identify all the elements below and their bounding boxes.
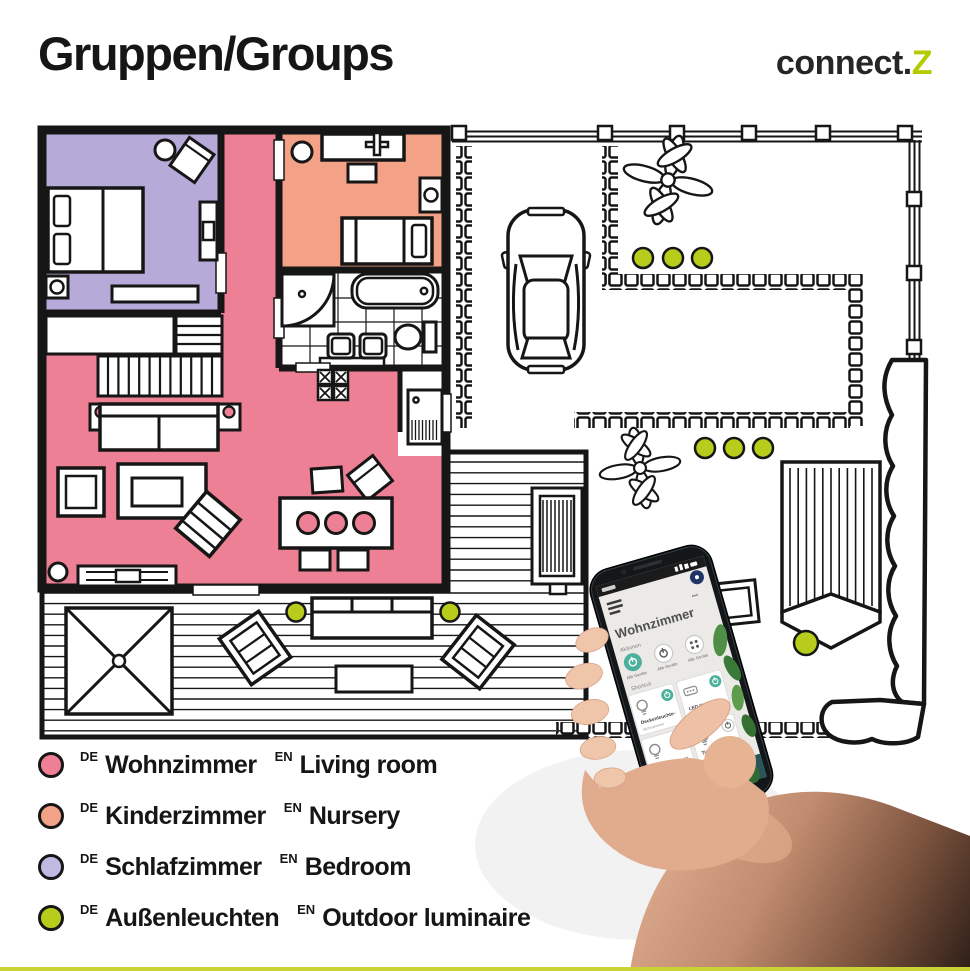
legend-item-nursery: DE Kinderzimmer EN Nursery [36, 799, 548, 833]
legend: DE Wohnzimmer EN Living room DE Kinderzi… [36, 748, 548, 952]
car [501, 208, 590, 373]
deck-table [336, 666, 412, 692]
outdoor-light-dot [753, 438, 773, 458]
sinks [320, 334, 386, 366]
legend-color-dot [40, 754, 63, 777]
page-title: Gruppen/Groups [38, 26, 393, 81]
kitchen-sink-unit [408, 390, 442, 444]
stove [318, 370, 348, 400]
legend-dot [36, 750, 66, 780]
brand-z-mark: Z [912, 44, 932, 82]
legend-color-dot [40, 856, 63, 879]
shower [282, 274, 334, 326]
lang-tag-en: EN [284, 800, 302, 815]
garden-plant [593, 421, 688, 516]
legend-item-bedroom: DE Schlafzimmer EN Bedroom [36, 850, 548, 884]
legend-color-dot [40, 805, 63, 828]
outdoor-light-dot [794, 631, 818, 655]
thumb-base [704, 736, 756, 788]
lang-tag-en: EN [280, 851, 298, 866]
folding-gate [782, 462, 880, 648]
legend-name-de: Außenleuchten [105, 904, 279, 933]
lang-tag-de: DE [80, 851, 98, 866]
legend-item-living-room: DE Wohnzimmer EN Living room [36, 748, 548, 782]
legend-color-dot [40, 907, 63, 930]
deck-bench [312, 598, 432, 638]
fence-top [452, 126, 922, 142]
lang-tag-en: EN [275, 749, 293, 764]
sofa [90, 404, 240, 450]
legend-name-de: Kinderzimmer [105, 802, 266, 831]
fence-right [907, 140, 921, 362]
outdoor-light-dot [695, 438, 715, 458]
lang-tag-de: DE [80, 749, 98, 764]
outdoor-light-dot [287, 603, 306, 622]
lang-tag-de: DE [80, 902, 98, 917]
legend-name-en: Nursery [309, 802, 400, 831]
bottom-accent-rule [0, 967, 970, 971]
brand-logo: connect.Z [776, 44, 932, 83]
legend-name-de: Schlafzimmer [105, 853, 262, 882]
toilet [395, 322, 436, 352]
outdoor-light-dot [724, 438, 744, 458]
outdoor-light-dot [663, 248, 683, 268]
outdoor-light-dot [633, 248, 653, 268]
parasol [66, 608, 172, 714]
brand-prefix: connect. [776, 44, 912, 82]
deck-louver [532, 488, 582, 594]
lang-tag-de: DE [80, 800, 98, 815]
infographic-page: ••• Wohnzimmer Aktionen Alle Geräte Alle… [0, 0, 970, 971]
outdoor-light-dot [441, 603, 460, 622]
legend-dot [36, 801, 66, 831]
legend-name-de: Wohnzimmer [105, 751, 257, 780]
legend-dot [36, 852, 66, 882]
lang-tag-en: EN [297, 902, 315, 917]
bathtub [352, 274, 438, 308]
legend-dot [36, 903, 66, 933]
outdoor-light-dot [692, 248, 712, 268]
legend-item-outdoor-luminaire: DE Außenleuchten EN Outdoor luminaire [36, 901, 548, 935]
legend-name-en: Outdoor luminaire [322, 904, 530, 933]
legend-name-en: Bedroom [305, 853, 411, 882]
legend-name-en: Living room [300, 751, 438, 780]
